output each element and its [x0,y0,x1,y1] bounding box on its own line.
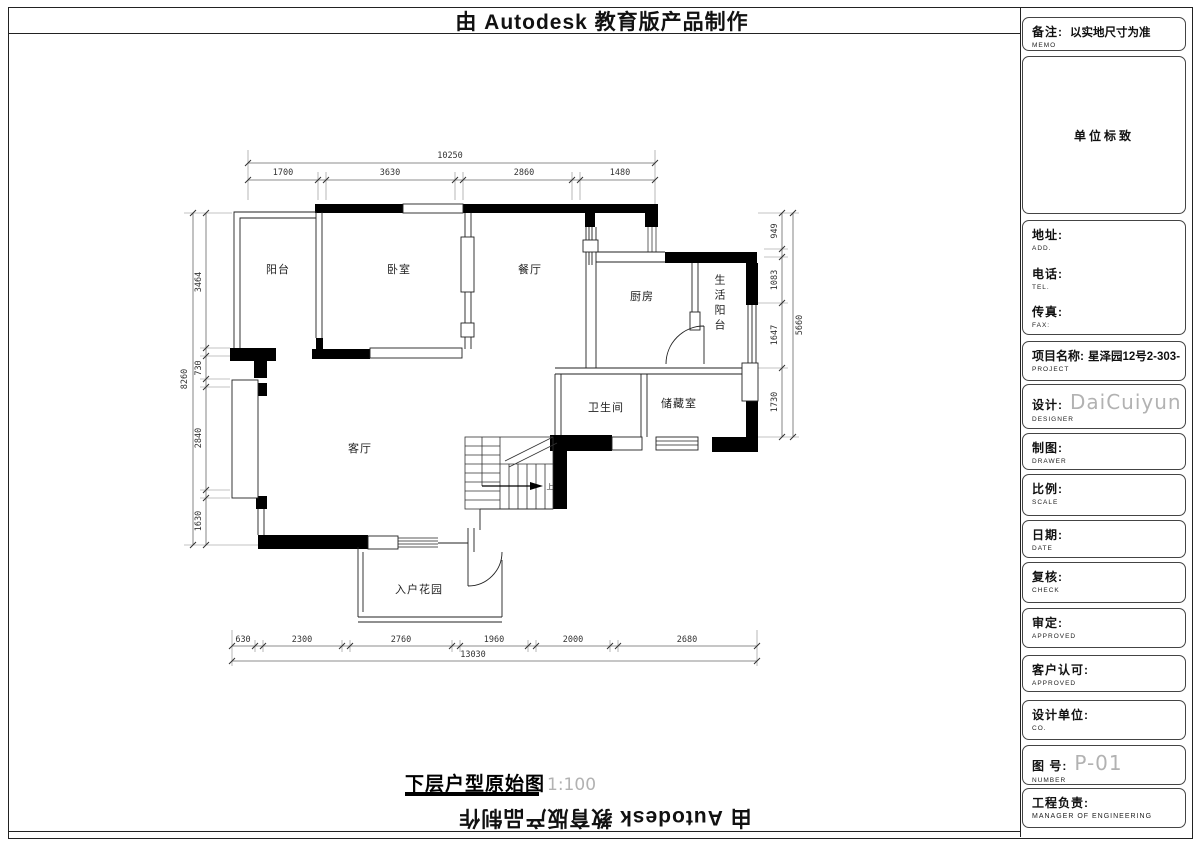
project-box: 项目名称: 星泽园12号2-303- PROJECT [1022,341,1186,381]
dim-left-overall: 8260 [180,369,190,389]
design-company-label: 设计单位: [1032,706,1176,723]
drawer-label-en: DRAWER [1032,458,1176,465]
drawing-number-value: P-01 [1074,751,1122,775]
drawer-label: 制图: [1032,439,1176,456]
dim-left-1: 3464 [194,272,204,292]
date-label-en: DATE [1032,545,1176,552]
scale-box: 比例: SCALE [1022,474,1186,516]
dim-right-2: 1083 [770,270,780,290]
dim-left-2: 730 [194,360,204,375]
stair-direction-label: 上 [547,482,554,492]
scale-label: 比例: [1032,480,1176,497]
address-label: 地址: [1032,226,1176,243]
dim-bottom-1: 630 [235,635,250,645]
room-label-dining: 餐厅 [518,261,542,277]
approved-label-en: APPROVED [1032,633,1176,640]
stairs [465,437,557,509]
dim-right-4: 1730 [770,392,780,412]
dim-right-3: 1647 [770,325,780,345]
room-label-kitchen: 厨房 [630,288,654,304]
dim-top-2: 3630 [380,168,400,178]
project-label-en: PROJECT [1032,366,1176,373]
dim-left-4: 1630 [194,511,204,531]
phone-field: 电话: TEL. [1032,265,1176,291]
check-label: 复核: [1032,568,1176,585]
room-label-balcony: 阳台 [266,261,290,277]
memo-label-en: MEMO [1032,42,1176,49]
address-label-en: ADD. [1032,245,1176,252]
drawing-number-label-en: NUMBER [1032,777,1176,784]
dim-top-3: 2860 [514,168,534,178]
room-label-living: 客厅 [348,440,372,456]
design-company-label-en: CO. [1032,725,1176,732]
room-label-storage: 储藏室 [661,395,697,411]
check-box: 复核: CHECK [1022,562,1186,603]
engineer-label-en: MANAGER OF ENGINEERING [1032,813,1176,820]
designer-label-en: DESIGNER [1032,416,1176,423]
dim-bottom-6: 2680 [677,635,697,645]
engineer-box: 工程负责: MANAGER OF ENGINEERING [1022,788,1186,828]
stair-direction-arrow [530,482,543,490]
dim-bottom-5: 2000 [563,635,583,645]
contact-box: 地址: ADD. 电话: TEL. 传真: FAX: [1022,220,1186,335]
date-box: 日期: DATE [1022,520,1186,558]
drawing-sheet: 由 Autodesk 教育版产品制作 由 Autodesk 教育版产品制作 [0,0,1200,843]
dim-top-4: 1480 [610,168,630,178]
dim-bottom-2: 2300 [292,635,312,645]
fax-label-en: FAX: [1032,322,1176,329]
dim-right-1: 949 [770,223,780,238]
date-label: 日期: [1032,526,1176,543]
designer-label: 设计: [1032,396,1063,413]
sheet-title-underline [405,792,539,796]
client-approval-box: 客户认可: APPROVED [1022,655,1186,692]
dim-left-3: 2840 [194,428,204,448]
approved-label: 审定: [1032,614,1176,631]
room-label-bathroom: 卫生间 [588,399,624,415]
floorplan-drawing [0,0,1020,843]
fax-field: 传真: FAX: [1032,303,1176,329]
address-field: 地址: ADD. [1032,226,1176,252]
dim-top-1: 1700 [273,168,293,178]
entry-door [468,552,502,586]
check-label-en: CHECK [1032,587,1176,594]
scale-label-en: SCALE [1032,499,1176,506]
dim-bottom-4: 1960 [484,635,504,645]
project-label: 项目名称: [1032,347,1084,364]
drawing-number-label: 图 号: [1032,757,1067,774]
company-logo-placeholder: 单位标致 [1074,127,1134,144]
client-approval-label: 客户认可: [1032,661,1176,678]
extension-lines [184,150,799,666]
sheet-title-scale: 1:100 [547,775,596,795]
approved-box: 审定: APPROVED [1022,608,1186,648]
memo-box: 备注: 以实地尺寸为准 MEMO [1022,17,1186,51]
company-logo-box: 单位标致 [1022,56,1186,214]
fax-label: 传真: [1032,303,1176,320]
dim-right-overall: 5660 [795,315,805,335]
phone-label: 电话: [1032,265,1176,282]
dimension-ticks [190,160,796,664]
memo-label: 备注: [1032,23,1063,40]
kitchen-door [666,326,704,364]
room-label-utility-balcony: 生活阳台 [711,274,727,334]
designer-value: DaiCuiyun [1070,390,1182,414]
dim-top-overall: 10250 [437,151,463,161]
project-value: 星泽园12号2-303- [1088,348,1180,364]
window-hatches [398,227,698,547]
engineer-label: 工程负责: [1032,794,1176,811]
dimension-lines [193,163,793,661]
client-approval-label-en: APPROVED [1032,680,1176,687]
design-company-box: 设计单位: CO. [1022,700,1186,740]
room-label-entry-garden: 入户花园 [395,581,443,597]
designer-box: 设计: DaiCuiyun DESIGNER [1022,384,1186,429]
room-label-bedroom: 卧室 [387,261,411,277]
drawer-box: 制图: DRAWER [1022,433,1186,470]
memo-value: 以实地尺寸为准 [1070,24,1151,40]
drawing-number-box: 图 号: P-01 NUMBER [1022,745,1186,785]
dim-bottom-overall: 13030 [460,650,486,660]
walls-thick [230,204,758,549]
dim-bottom-3: 2760 [391,635,411,645]
titleblock-separator-line [1020,7,1021,837]
phone-label-en: TEL. [1032,284,1176,291]
walls-thin [234,212,756,622]
